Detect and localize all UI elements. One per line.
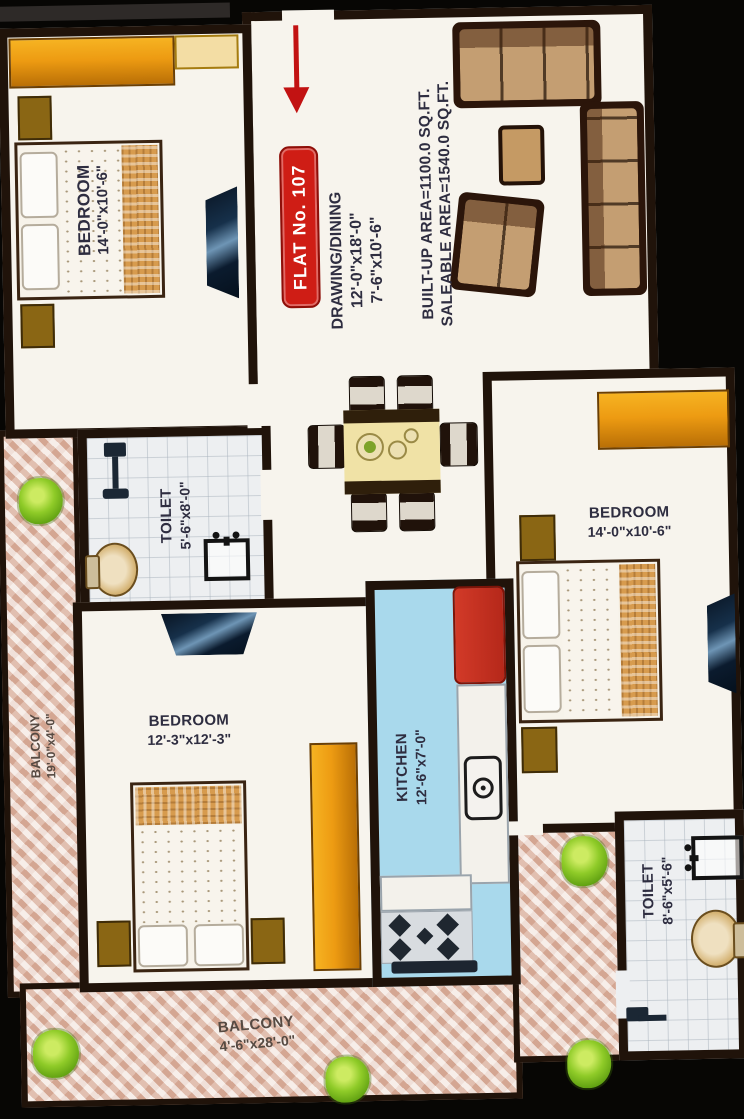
dining-table — [343, 409, 441, 495]
double-bed — [130, 780, 249, 972]
bed-pillows — [521, 566, 562, 719]
drawing-dining-label: DRAWING/DINING 12'-0"x18'-0" 7'-6"x10'-6… — [326, 191, 389, 330]
burner — [389, 938, 412, 961]
shower-stem — [638, 1015, 666, 1022]
pillow — [21, 224, 60, 291]
pillow — [521, 571, 560, 640]
bed-blanket — [619, 564, 658, 717]
drawing-dining-name: DRAWING/DINING — [326, 192, 349, 330]
shelf — [174, 34, 239, 69]
toilet-lower-label: TOILET 8'-6"x5'-6" — [639, 856, 676, 925]
nightstand — [521, 727, 558, 774]
burner — [437, 937, 460, 960]
plate — [404, 428, 419, 443]
double-bed — [516, 559, 663, 724]
plate — [388, 440, 407, 459]
flat-number-badge: FLAT No. 107 — [279, 146, 321, 308]
toilet-upper-label: TOILET 5'-6"x8'-0" — [157, 481, 194, 550]
gas-stove-icon — [380, 910, 473, 964]
dining-chair — [308, 424, 347, 469]
shower-icon — [104, 442, 126, 456]
pillow — [19, 152, 58, 219]
refrigerator-icon — [452, 586, 506, 685]
bed-pillows — [138, 923, 245, 967]
balcony-bottom-label: BALCONY 4'-6"x28'-0" — [217, 1013, 296, 1056]
entrance-door-gap — [282, 10, 334, 23]
bed-pillows — [19, 147, 60, 296]
floor-plan-scan: FLAT No. 107 DRAWING/DINING 12'-0"x18'-0… — [0, 0, 744, 1119]
pillow — [194, 923, 245, 966]
tv-icon — [707, 593, 737, 693]
area-summary-label: BUILT-UP AREA=1100.0 SQ.FT. SALEABLE ARE… — [415, 81, 458, 327]
entrance-arrow-icon — [283, 87, 309, 113]
shower-base — [103, 488, 129, 498]
nightstand — [519, 515, 556, 562]
shower-stem — [112, 457, 119, 489]
bedroom-center-label: BEDROOM 12'-3"x12'-3" — [147, 711, 231, 749]
scan-edge-artifact — [0, 3, 230, 22]
kitchen-label: KITCHEN 12'-6"x7'-0" — [393, 729, 431, 806]
washbasin-icon — [691, 835, 744, 880]
coffee-table — [498, 125, 545, 186]
wardrobe — [309, 742, 361, 971]
bedroom-top-left-door-gap — [247, 384, 262, 428]
kitchen-skirting — [391, 960, 477, 974]
plate — [356, 433, 385, 462]
dining-chair — [399, 491, 436, 532]
bed-headboard — [135, 785, 242, 825]
plant-icon — [567, 1040, 612, 1089]
bedroom-top-left-label: BEDROOM 14'-0"x10'-6" — [73, 164, 115, 256]
bed-blanket — [121, 145, 160, 294]
bed-sheet — [561, 565, 620, 718]
wardrobe — [597, 389, 730, 449]
drawing-dining-dim2: 7'-6"x10'-6" — [366, 191, 389, 329]
tv-icon — [205, 186, 239, 299]
burner — [416, 928, 433, 945]
nightstand — [97, 920, 132, 967]
pillow — [523, 645, 562, 714]
nightstand — [20, 304, 55, 349]
kitchen-sink-icon — [464, 756, 503, 821]
tv-icon — [161, 612, 258, 656]
armchair — [449, 191, 545, 297]
drawing-dining-dim1: 12'-0"x18'-0" — [346, 191, 369, 329]
burner — [388, 914, 411, 937]
bed-sheet — [136, 825, 244, 923]
pillow — [138, 924, 189, 967]
sofa-two-seater — [580, 101, 648, 296]
bedroom-right-label: BEDROOM 14'-0"x10'-6" — [587, 503, 671, 541]
washbasin-icon — [204, 538, 251, 581]
balcony-left-label: BALCONY 19'-0"x4'-0" — [27, 713, 59, 779]
burner — [436, 913, 459, 936]
flat-107-plan: FLAT No. 107 DRAWING/DINING 12'-0"x18'-0… — [0, 0, 744, 1119]
kitchen-platform — [380, 874, 473, 912]
dining-chair — [439, 422, 478, 467]
toilet-upper-door-gap — [260, 470, 273, 520]
nightstand — [17, 96, 52, 141]
wardrobe — [8, 36, 175, 89]
nightstand — [251, 918, 286, 965]
dining-chair — [351, 492, 388, 533]
sofa-three-seater — [452, 20, 602, 109]
